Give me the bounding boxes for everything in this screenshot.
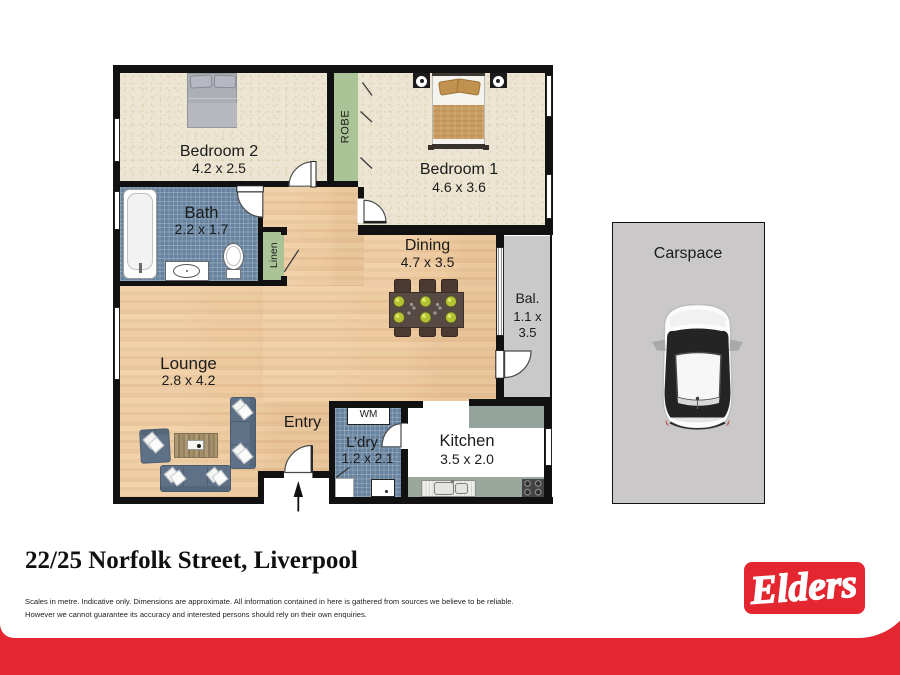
svg-text:Elders: Elders [748, 562, 859, 613]
